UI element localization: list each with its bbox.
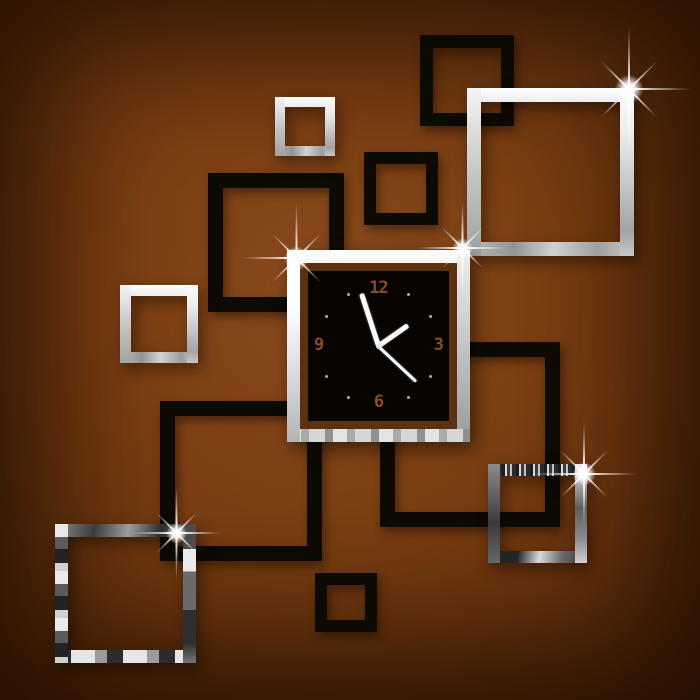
mirror-frame-edge-l — [55, 524, 68, 663]
mirror-frame-edge-b — [55, 650, 196, 663]
clock-frame-edge-left — [287, 250, 300, 442]
mirror-frame-edge-t — [467, 88, 634, 102]
clock-digit-12: 12 — [308, 280, 449, 297]
hour-tick-dot — [325, 375, 328, 378]
mirror-frame-edge-b — [467, 242, 634, 256]
clock-frame-edge-bottom — [287, 429, 470, 442]
mirror-square-large — [467, 88, 634, 256]
mirror-square-bottom-right — [488, 464, 587, 563]
wall-clock-product-photo: 12 3 6 9 — [0, 0, 700, 700]
mirror-square-small-top — [275, 97, 335, 156]
mirror-frame-edge-b — [488, 551, 587, 563]
mirror-frame-edge-l — [275, 97, 285, 156]
clock-digit-9: 9 — [314, 337, 323, 354]
clock-face: 12 3 6 9 — [308, 271, 449, 421]
hour-tick-dot — [347, 293, 350, 296]
wall-clock: 12 3 6 9 — [287, 250, 470, 442]
minute-hand — [359, 293, 381, 347]
hour-tick-dot — [407, 293, 410, 296]
clock-frame-edge-top — [287, 250, 470, 263]
hour-tick-dot — [325, 315, 328, 318]
mirror-frame-edge-r — [187, 285, 198, 363]
second-hand — [378, 345, 418, 382]
mirror-frame-edge-r — [183, 524, 196, 663]
clock-digit-3: 3 — [434, 337, 443, 354]
mirror-frame-edge-l — [120, 285, 131, 363]
clock-frame-edge-right — [457, 250, 470, 442]
mirror-frame-edge-r — [325, 97, 335, 156]
mirror-square-bottom-left — [55, 524, 196, 663]
mirror-frame-edge-r — [575, 464, 587, 563]
black-square-upper-mid — [364, 152, 438, 225]
hour-tick-dot — [429, 315, 432, 318]
hour-tick-dot — [429, 375, 432, 378]
clock-center-cap — [376, 343, 382, 349]
mirror-frame-edge-l — [467, 88, 481, 256]
mirror-frame-edge-t — [488, 464, 587, 476]
black-square-bottom-small — [315, 573, 377, 632]
mirror-frame-edge-r — [620, 88, 634, 256]
mirror-frame-edge-l — [488, 464, 500, 563]
mirror-square-left — [120, 285, 198, 363]
clock-inner-ring: 12 3 6 9 — [300, 263, 457, 429]
mirror-frame-edge-t — [55, 524, 196, 537]
clock-digit-6: 6 — [308, 394, 449, 411]
hour-hand — [377, 323, 409, 348]
